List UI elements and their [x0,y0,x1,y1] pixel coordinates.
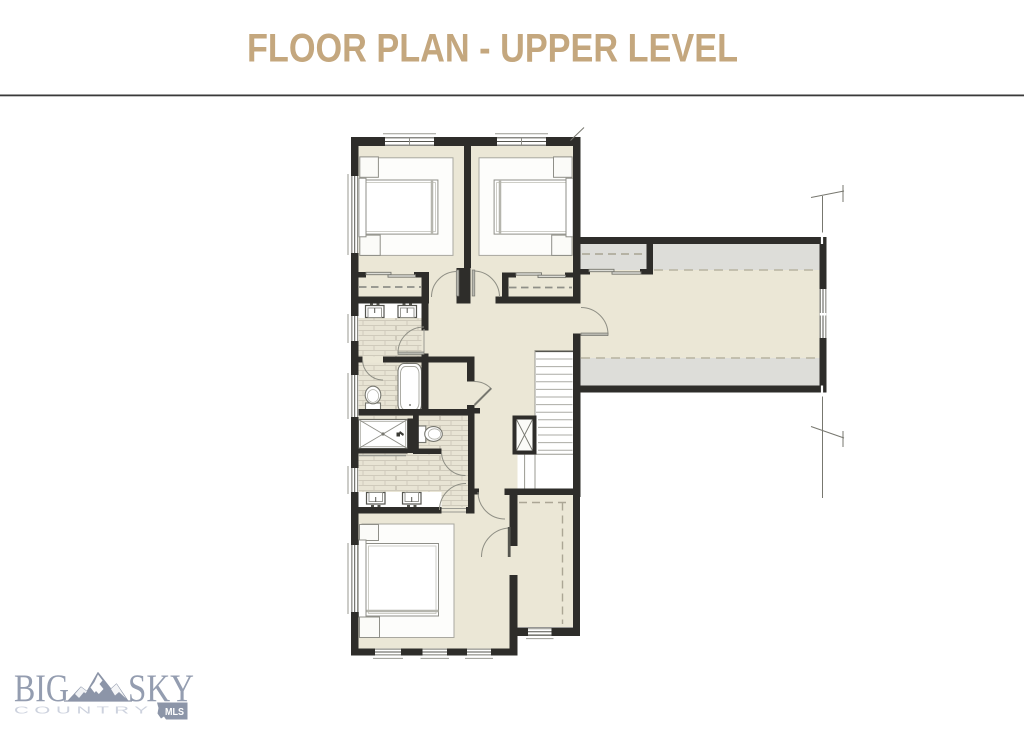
svg-text:FLOOR PLAN - UPPER LEVEL: FLOOR PLAN - UPPER LEVEL [247,27,738,71]
svg-text:BIG: BIG [14,667,69,710]
svg-text:MLS: MLS [165,706,184,718]
svg-text:C O U N T R Y: C O U N T R Y [14,706,149,717]
